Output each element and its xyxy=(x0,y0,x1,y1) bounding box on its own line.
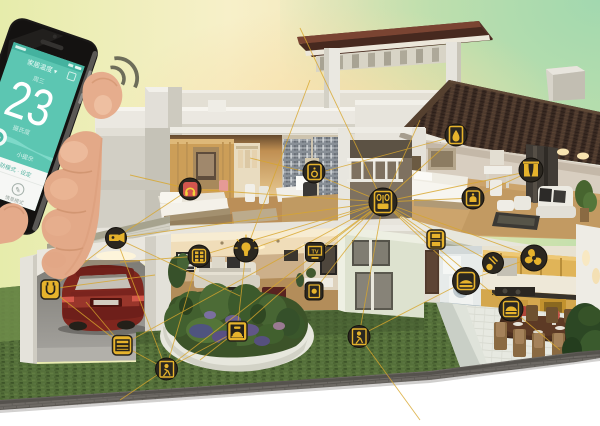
svg-text:TV: TV xyxy=(311,250,318,256)
